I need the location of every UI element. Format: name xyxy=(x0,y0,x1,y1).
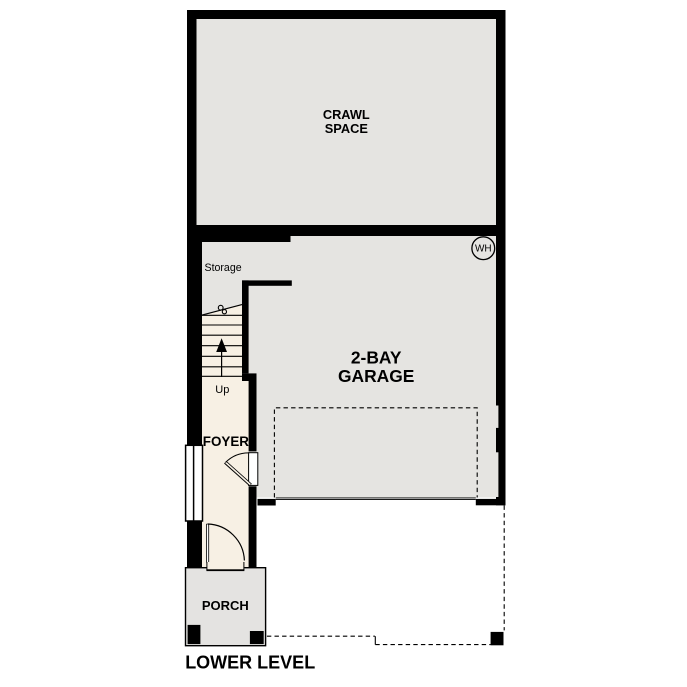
svg-text:Up: Up xyxy=(215,384,229,396)
svg-text:Storage: Storage xyxy=(205,262,242,274)
svg-text:FOYER: FOYER xyxy=(203,434,249,449)
svg-text:2-BAY: 2-BAY xyxy=(351,347,402,367)
svg-text:WH: WH xyxy=(475,243,492,254)
svg-text:PORCH: PORCH xyxy=(202,598,249,613)
svg-text:SPACE: SPACE xyxy=(325,121,369,136)
svg-text:LOWER LEVEL: LOWER LEVEL xyxy=(185,653,315,673)
svg-text:GARAGE: GARAGE xyxy=(338,366,414,386)
